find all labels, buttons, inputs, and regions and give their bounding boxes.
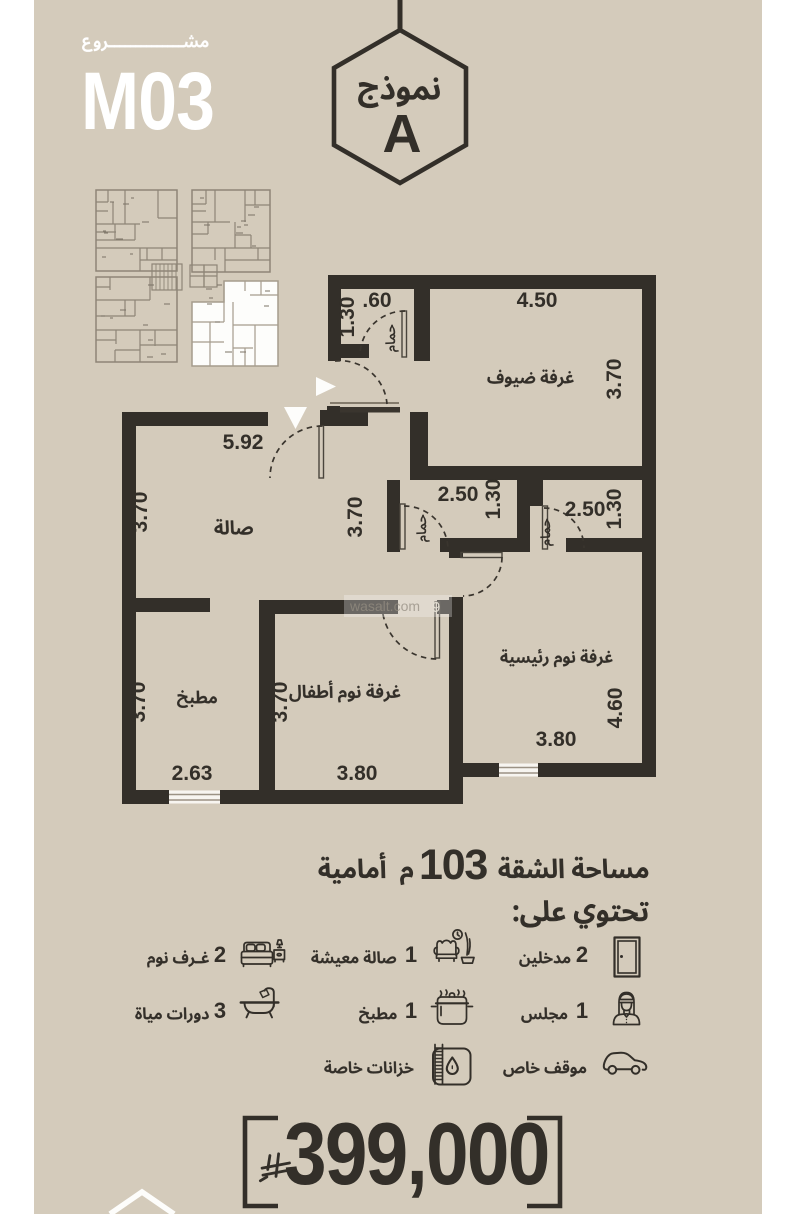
svg-text:4.50: 4.50 <box>517 289 558 312</box>
svg-text:wasalt.com: wasalt.com <box>349 598 420 614</box>
svg-text:4.60: 4.60 <box>604 688 627 729</box>
svg-text:5.92: 5.92 <box>223 431 264 454</box>
svg-text:1.30: 1.30 <box>603 489 626 530</box>
svg-text:2.63: 2.63 <box>172 762 213 785</box>
svg-text:1.30: 1.30 <box>336 297 359 338</box>
svg-text:3.80: 3.80 <box>337 762 378 785</box>
svg-text:3.70: 3.70 <box>603 359 626 400</box>
svg-text:2.50: 2.50 <box>565 498 606 521</box>
svg-text:9: 9 <box>432 599 440 616</box>
svg-text:3.70: 3.70 <box>344 497 367 538</box>
svg-text:3.80: 3.80 <box>536 728 577 751</box>
svg-text:3.70: 3.70 <box>129 492 152 533</box>
svg-text:.60: .60 <box>362 289 391 312</box>
svg-text:1.30: 1.30 <box>482 479 505 520</box>
svg-text:3.70: 3.70 <box>127 682 150 723</box>
svg-text:2.50: 2.50 <box>438 483 479 506</box>
